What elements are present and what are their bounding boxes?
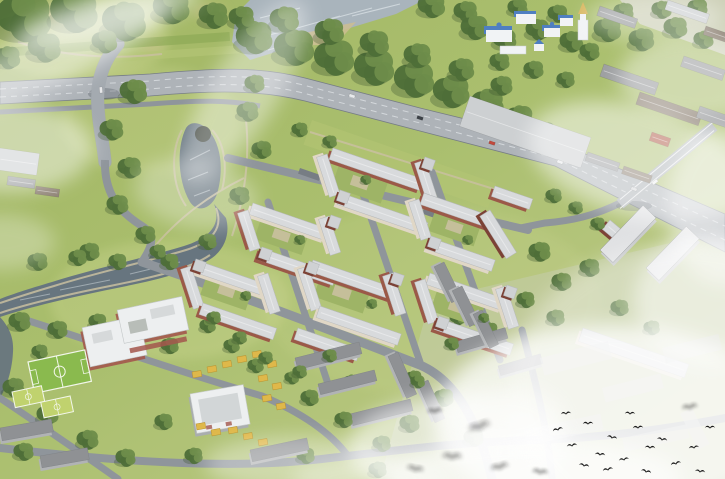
play-canopy — [272, 382, 282, 389]
church-building — [500, 46, 526, 54]
church-building — [486, 30, 512, 42]
aerial-render — [0, 0, 725, 479]
church-dome — [496, 22, 501, 27]
bell-tower — [578, 20, 588, 40]
aerial-render-viewport: Bird's-eye architectural visualization o… — [0, 0, 725, 479]
vehicle — [99, 87, 103, 93]
church-building — [560, 18, 573, 26]
play-canopy — [222, 360, 232, 367]
play-canopy — [211, 428, 221, 435]
play-canopy — [237, 355, 247, 362]
church-building — [544, 28, 560, 37]
play-canopy — [192, 370, 202, 377]
fog-patch — [445, 384, 565, 452]
church-dome — [550, 22, 554, 26]
play-canopy — [258, 374, 268, 381]
play-canopy — [276, 402, 286, 409]
play-canopy — [196, 422, 206, 429]
chapel — [534, 44, 544, 51]
church-building — [516, 14, 536, 24]
play-canopy — [262, 394, 272, 401]
play-canopy — [243, 432, 253, 439]
play-canopy — [228, 426, 238, 433]
play-canopy — [207, 365, 217, 372]
